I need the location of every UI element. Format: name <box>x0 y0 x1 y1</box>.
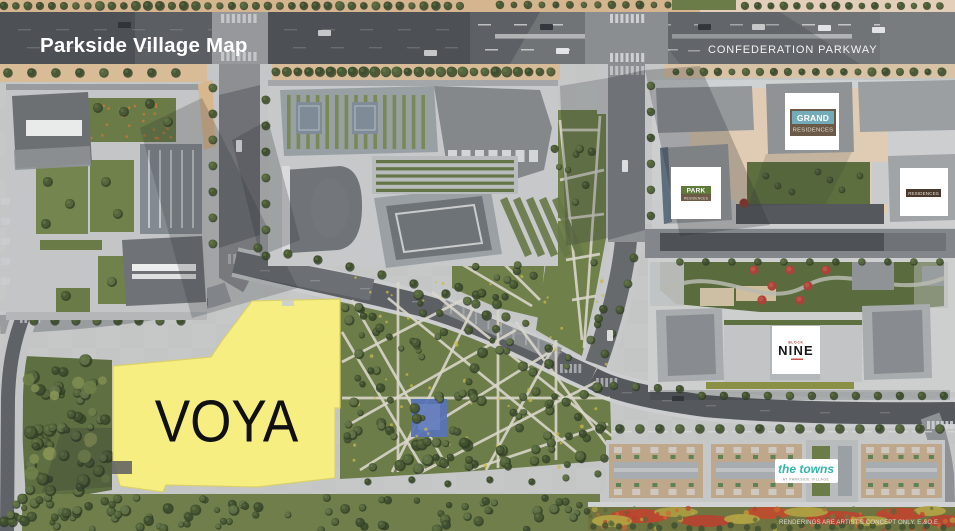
svg-text:Parkside Village Map: Parkside Village Map <box>40 34 248 57</box>
svg-text:RESIDENCES: RESIDENCES <box>684 197 709 201</box>
svg-text:RESIDENCES: RESIDENCES <box>793 128 834 134</box>
svg-text:VOYA: VOYA <box>155 388 299 454</box>
svg-text:AT PARKSIDE VILLAGE: AT PARKSIDE VILLAGE <box>783 478 830 482</box>
svg-text:NINE: NINE <box>778 343 814 358</box>
svg-text:PARK: PARK <box>687 188 706 195</box>
svg-text:GRAND: GRAND <box>797 113 829 123</box>
svg-text:the towns: the towns <box>778 462 834 476</box>
svg-text:RENDERINGS ARE ARTIST'S CONCEP: RENDERINGS ARE ARTIST'S CONCEPT ONLY. E.… <box>779 519 940 526</box>
svg-text:RESIDENCES: RESIDENCES <box>908 191 939 196</box>
svg-text:CONFEDERATION PARKWAY: CONFEDERATION PARKWAY <box>708 44 877 56</box>
